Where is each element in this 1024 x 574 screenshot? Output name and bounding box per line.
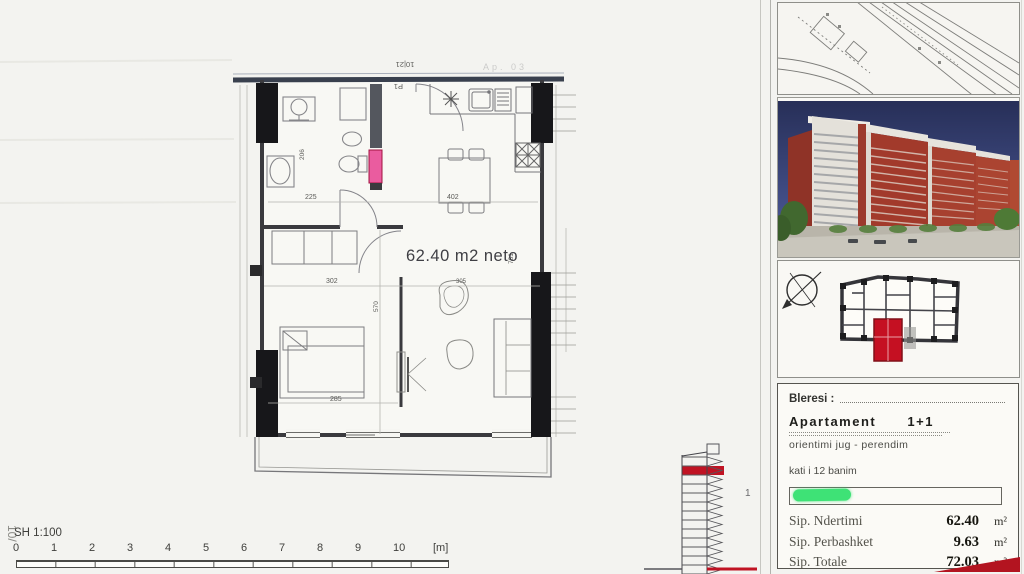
name-field — [789, 487, 1002, 505]
dim-hall: 225 — [305, 194, 317, 201]
tick: 4 — [165, 542, 203, 554]
dotted-underline-2 — [789, 435, 942, 436]
scale-label: SH 1:100 — [14, 527, 62, 539]
faint-apartment-label: Ap. 03 — [483, 62, 527, 72]
scale-tick-labels: 0 1 2 3 4 5 6 7 8 9 10 [m] — [13, 542, 448, 554]
entry-partition — [369, 84, 382, 190]
dotted-underline — [789, 432, 950, 433]
burner-icon — [443, 91, 459, 107]
area-table: Sip. Ndertimi 62.40 m² Sip. Perbashket 9… — [789, 513, 1007, 571]
dim-bedroom-h: 570 — [373, 301, 380, 312]
table-row: Sip. Perbashket 9.63 m² — [789, 534, 1007, 551]
orientation-note: orientimi jug - perendim — [789, 439, 1007, 451]
tick: 2 — [89, 542, 127, 554]
top-wall-lines — [233, 73, 564, 80]
keyplan-drawing — [778, 261, 1019, 377]
dim-kitchen: 402 — [447, 194, 459, 201]
building-section-stack: 1 — [644, 444, 757, 574]
right-tick-comb — [548, 95, 576, 433]
row-label: Sip. Perbashket — [789, 534, 925, 550]
vent-grid — [516, 143, 540, 167]
highlighted-floor — [682, 466, 724, 475]
row-label: Sip. Totale — [789, 554, 925, 570]
green-highlighter-mark — [793, 488, 851, 501]
dim-chair: 305 — [456, 279, 467, 285]
tick: 10 — [393, 542, 431, 554]
highlighted-unit — [874, 319, 902, 361]
row-value: 62.40 — [925, 513, 979, 530]
apartment-title: Apartament 1+1 — [789, 414, 1007, 429]
keyplan-panel — [777, 260, 1020, 378]
tick: 1 — [51, 542, 89, 554]
door-label: P1 — [394, 82, 403, 91]
row-label: Sip. Ndertimi — [789, 513, 925, 529]
scale-unit: [m] — [433, 542, 448, 554]
tick: 6 — [241, 542, 279, 554]
net-area-label: 62.40 m2 neto — [406, 247, 518, 265]
tick: 7 — [279, 542, 317, 554]
tick: 3 — [127, 542, 165, 554]
tick: 0 — [13, 542, 51, 554]
tick: 8 — [317, 542, 355, 554]
section-floor-marker: 1 — [745, 488, 751, 499]
row-value: 9.63 — [925, 534, 979, 551]
door-dim-label: 10|21 — [396, 60, 415, 69]
building-render-image — [778, 98, 1019, 257]
tick: 9 — [355, 542, 393, 554]
apartment-type: 1+1 — [907, 414, 934, 429]
site-map-drawing — [778, 3, 1019, 94]
floor-note: kati i 12 banim — [789, 465, 1007, 477]
scan-streaks — [0, 60, 236, 203]
dim-bath: 206 — [299, 149, 306, 160]
site-map-panel — [777, 2, 1020, 95]
table-row: Sip. Ndertimi 62.40 m² — [789, 513, 1007, 530]
buyer-row: Bleresi : — [789, 393, 1007, 405]
apartment-label: Apartament — [789, 414, 876, 429]
scanned-floorplan-sheet: 225 402 302 305 285 570 781 206 10|21 P1… — [0, 0, 1024, 574]
buyer-dotted-line — [840, 402, 1005, 403]
row-unit: m² — [979, 514, 1007, 529]
dim-bed: 285 — [330, 396, 342, 403]
building-render-panel — [777, 97, 1020, 258]
shaft-highlight — [369, 150, 382, 183]
row-unit: m² — [979, 535, 1007, 550]
tick: 5 — [203, 542, 241, 554]
dim-bedroom-w: 302 — [326, 278, 338, 285]
graphic-scale-bar — [16, 560, 449, 568]
balcony — [255, 437, 551, 477]
buyer-label: Bleresi : — [789, 393, 834, 405]
apartment-info-panel: Bleresi : Apartament 1+1 orientimi jug -… — [777, 383, 1019, 569]
